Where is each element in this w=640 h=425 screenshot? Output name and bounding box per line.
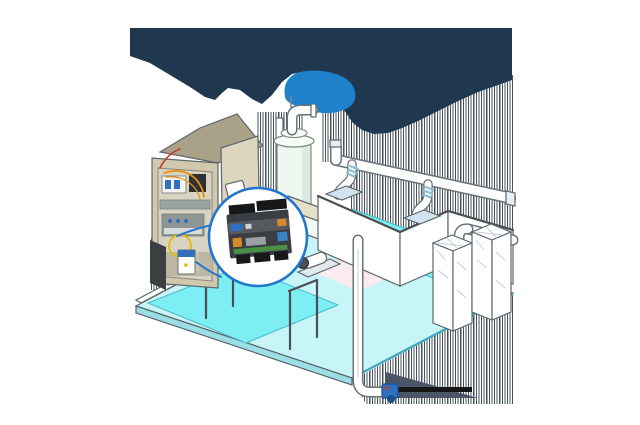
filter-2-front <box>472 232 492 320</box>
shadow-slate <box>386 372 478 398</box>
relay-dot-1 <box>168 219 172 223</box>
pump-hub <box>387 395 395 403</box>
shadow-black-bar <box>392 387 472 392</box>
filter-unit-1 <box>433 235 472 331</box>
filter-units <box>433 224 511 331</box>
duct-right-cap <box>506 191 515 206</box>
contactor <box>189 174 206 192</box>
controller-foot-2 <box>254 252 271 262</box>
controller-connector-orange <box>232 238 242 248</box>
controller-foot-1 <box>236 254 251 264</box>
cabinet-under-shade <box>150 240 166 290</box>
vessel-elbow-flange <box>311 104 316 117</box>
filter-1-front <box>433 243 453 331</box>
controller-connector-blue <box>277 232 288 242</box>
pump-indicator <box>385 386 389 390</box>
relay-dot-3 <box>184 219 188 223</box>
controller-callout <box>209 188 307 286</box>
floor-shadow <box>386 372 478 398</box>
breaker-toggle-2 <box>174 180 180 189</box>
wiring-duct <box>160 200 210 209</box>
filter-unit-2 <box>472 224 511 320</box>
system-illustration <box>0 0 640 425</box>
pipe-flange-1 <box>326 186 362 200</box>
controller-label-blue <box>230 223 243 231</box>
breaker-toggle-1 <box>165 180 171 189</box>
relay-dot-2 <box>176 219 180 223</box>
din-controller <box>225 198 292 264</box>
controller-foot-3 <box>274 251 289 261</box>
filter-1-side <box>453 243 472 331</box>
controller-label-white <box>245 224 251 230</box>
sensor-top-stripe <box>178 250 195 257</box>
vessel-shade <box>302 145 310 207</box>
duct-left-cap <box>330 140 341 147</box>
sensor-dot <box>184 263 188 267</box>
scene-svg <box>0 0 640 425</box>
filter-2-side <box>492 232 511 320</box>
vessel-elbow-pipe <box>292 110 313 130</box>
drain-pump <box>382 384 398 403</box>
controller-label-orange <box>277 219 287 227</box>
